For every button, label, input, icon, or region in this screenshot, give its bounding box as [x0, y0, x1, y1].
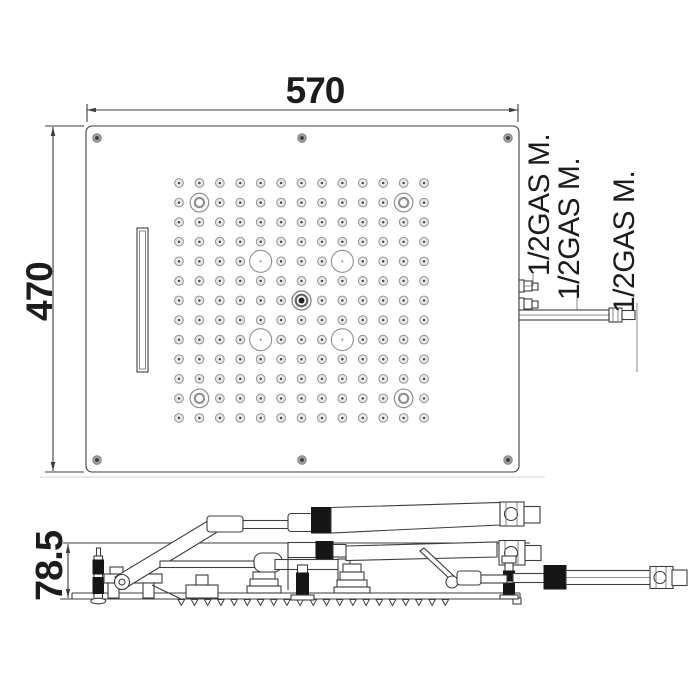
dimension-depth: 78.5 [29, 530, 92, 601]
medium-circle-nozzle-dot [260, 339, 262, 341]
small-nozzle-dot [361, 221, 364, 224]
gas-thread-label-3: 1/2GAS M. [608, 171, 641, 313]
screw-hole-center [300, 136, 304, 140]
small-nozzle-dot [382, 319, 385, 322]
small-nozzle-dot [219, 378, 222, 381]
small-nozzle-dot [239, 358, 242, 361]
side-view [63, 502, 687, 606]
small-nozzle-dot [361, 182, 364, 185]
small-nozzle-dot [280, 260, 283, 263]
small-nozzle-dot [361, 397, 364, 400]
small-nozzle-dot [198, 417, 201, 420]
small-nozzle-dot [259, 417, 262, 420]
large-ring-nozzle-center [195, 394, 204, 403]
small-nozzle-dot [219, 221, 222, 224]
small-nozzle-dot [402, 240, 405, 243]
small-nozzle-dot [198, 319, 201, 322]
small-nozzle-dot [402, 338, 405, 341]
small-nozzle-dot [341, 182, 344, 185]
small-nozzle-dot [300, 338, 303, 341]
small-nozzle-dot [239, 221, 242, 224]
small-nozzle-dot [341, 221, 344, 224]
small-nozzle-dot [280, 417, 283, 420]
small-nozzle-dot [402, 221, 405, 224]
small-nozzle-dot [178, 358, 181, 361]
small-nozzle-dot [219, 280, 222, 283]
serration-tooth [323, 600, 330, 606]
small-nozzle-dot [321, 221, 324, 224]
small-nozzle-dot [300, 260, 303, 263]
small-nozzle-dot [341, 240, 344, 243]
screw-hole-center [506, 458, 510, 462]
small-nozzle-dot [259, 280, 262, 283]
small-nozzle-dot [259, 182, 262, 185]
small-nozzle-dot [239, 201, 242, 204]
small-nozzle-dot [198, 221, 201, 224]
small-nozzle-dot [341, 417, 344, 420]
link-rod [160, 561, 258, 568]
screw-hole-center [300, 458, 304, 462]
small-nozzle-dot [280, 319, 283, 322]
small-nozzle-dot [382, 417, 385, 420]
small-nozzle-dot [402, 280, 405, 283]
small-nozzle-dot [259, 397, 262, 400]
small-nozzle-dot [361, 358, 364, 361]
small-nozzle-dot [178, 397, 181, 400]
small-nozzle-dot [321, 397, 324, 400]
serration-tooth [270, 600, 277, 606]
small-nozzle-dot [178, 417, 181, 420]
serration-tooth [218, 600, 225, 606]
small-nozzle-dot [259, 378, 262, 381]
small-nozzle-dot [280, 280, 283, 283]
small-nozzle-dot [259, 201, 262, 204]
small-nozzle-dot [423, 260, 426, 263]
small-nozzle-dot [361, 201, 364, 204]
small-nozzle-dot [280, 338, 283, 341]
small-nozzle-dot [239, 260, 242, 263]
technical-drawing-shower-head: 570 470 78.5 1/2GAS M. 1/2GAS M. 1/2GAS … [0, 0, 700, 700]
small-nozzle-dot [402, 319, 405, 322]
small-nozzle-dot [423, 201, 426, 204]
drawing-canvas: 570 470 78.5 1/2GAS M. 1/2GAS M. 1/2GAS … [0, 0, 700, 700]
small-nozzle-dot [402, 260, 405, 263]
small-nozzle-dot [341, 201, 344, 204]
small-nozzle-dot [300, 417, 303, 420]
small-nozzle-dot [300, 240, 303, 243]
small-nozzle-dot [402, 299, 405, 302]
small-nozzle-dot [341, 299, 344, 302]
stepped-fitting-1 [247, 572, 281, 593]
small-nozzle-dot [402, 358, 405, 361]
small-nozzle-dot [423, 397, 426, 400]
small-nozzle-dot [382, 358, 385, 361]
small-nozzle-dot [423, 358, 426, 361]
screw-hole-center [95, 458, 99, 462]
small-nozzle-dot [239, 240, 242, 243]
small-nozzle-dot [382, 260, 385, 263]
small-nozzle-dot [259, 358, 262, 361]
large-ring-nozzle-center [399, 198, 408, 207]
small-nozzle-dot [382, 378, 385, 381]
small-nozzle-dot [382, 240, 385, 243]
small-nozzle-dot [239, 338, 242, 341]
small-nozzle-dot [219, 338, 222, 341]
small-nozzle-dot [280, 299, 283, 302]
small-nozzle-dot [219, 417, 222, 420]
t-block [186, 575, 218, 598]
small-nozzle-dot [198, 240, 201, 243]
serration-tooth [350, 600, 357, 606]
large-ring-nozzle-center [195, 198, 204, 207]
small-nozzle-dot [361, 319, 364, 322]
small-nozzle-dot [178, 182, 181, 185]
serration-tooth [178, 600, 185, 606]
serration-tooth [402, 600, 409, 606]
small-nozzle-dot [300, 319, 303, 322]
serration-tooth [336, 600, 343, 606]
small-nozzle-dot [300, 378, 303, 381]
small-nozzle-dot [280, 182, 283, 185]
small-nozzle-dot [219, 260, 222, 263]
serration-tooth [244, 600, 251, 606]
serration-tooth [363, 600, 370, 606]
small-nozzle-dot [178, 378, 181, 381]
small-nozzle-dot [239, 182, 242, 185]
small-nozzle-dot [198, 358, 201, 361]
small-nozzle-dot [178, 319, 181, 322]
small-nozzle-dot [198, 338, 201, 341]
small-nozzle-dot [423, 240, 426, 243]
small-nozzle-dot [321, 338, 324, 341]
center-nozzle-dot [299, 297, 305, 303]
small-nozzle-dot [239, 280, 242, 283]
dimension-width-label: 570 [286, 70, 345, 111]
small-nozzle-dot [239, 417, 242, 420]
small-nozzle-dot [423, 417, 426, 420]
small-nozzle-dot [280, 397, 283, 400]
small-nozzle-dot [178, 260, 181, 263]
dimension-width: 570 [87, 70, 518, 122]
small-nozzle-dot [321, 240, 324, 243]
small-nozzle-dot [341, 397, 344, 400]
small-nozzle-dot [321, 280, 324, 283]
small-nozzle-dot [361, 280, 364, 283]
small-nozzle-dot [178, 338, 181, 341]
serration-tooth [442, 600, 449, 606]
small-nozzle-dot [361, 260, 364, 263]
serration-tooth [284, 600, 291, 606]
small-nozzle-dot [321, 319, 324, 322]
small-nozzle-dot [321, 299, 324, 302]
small-nozzle-dot [178, 221, 181, 224]
medium-circle-nozzle-dot [341, 339, 343, 341]
serration-tooth [429, 600, 436, 606]
small-nozzle-dot [321, 201, 324, 204]
small-nozzle-dot [280, 378, 283, 381]
small-nozzle-dot [198, 280, 201, 283]
small-nozzle-dot [423, 299, 426, 302]
dimension-height: 470 [19, 126, 84, 472]
small-nozzle-dot [382, 299, 385, 302]
small-nozzle-dot [361, 338, 364, 341]
large-ring-nozzle-center [399, 394, 408, 403]
small-nozzle-dot [341, 358, 344, 361]
small-nozzle-dot [300, 201, 303, 204]
small-nozzle-dot [423, 378, 426, 381]
small-nozzle-dot [259, 299, 262, 302]
small-nozzle-dot [382, 201, 385, 204]
gas-thread-label-1: 1/2GAS M. [523, 134, 556, 276]
bottom-pipe [513, 566, 687, 590]
small-nozzle-dot [219, 201, 222, 204]
small-nozzle-dot [198, 378, 201, 381]
small-nozzle-dot [423, 280, 426, 283]
serration-tooth [257, 600, 264, 606]
serration-tooth [376, 600, 383, 606]
small-nozzle-dot [382, 280, 385, 283]
small-nozzle-dot [239, 397, 242, 400]
small-nozzle-dot [219, 240, 222, 243]
dimension-height-label: 470 [19, 262, 60, 321]
small-nozzle-dot [361, 378, 364, 381]
small-nozzle-dot [178, 240, 181, 243]
small-nozzle-dot [198, 299, 201, 302]
small-nozzle-dot [280, 358, 283, 361]
small-nozzle-dot [239, 319, 242, 322]
screw-hole-center [95, 136, 99, 140]
small-nozzle-dot [219, 319, 222, 322]
small-nozzle-dot [321, 417, 324, 420]
small-nozzle-dot [280, 221, 283, 224]
serration-tooth [191, 600, 198, 606]
small-nozzle-dot [361, 417, 364, 420]
small-nozzle-dot [341, 378, 344, 381]
small-nozzle-dot [423, 182, 426, 185]
small-nozzle-dot [219, 182, 222, 185]
medium-circle-nozzle-dot [260, 260, 262, 262]
small-nozzle-dot [259, 319, 262, 322]
small-nozzle-dot [259, 240, 262, 243]
small-nozzle-dot [300, 280, 303, 283]
small-nozzle-dot [239, 299, 242, 302]
small-nozzle-dot [280, 240, 283, 243]
small-nozzle-dot [219, 358, 222, 361]
serration-tooth [389, 600, 396, 606]
dimension-depth-label: 78.5 [29, 530, 71, 601]
small-nozzle-dot [321, 260, 324, 263]
small-nozzle-dot [198, 182, 201, 185]
screw-hole-center [506, 136, 510, 140]
small-nozzle-dot [300, 397, 303, 400]
top-hose [207, 502, 540, 533]
small-nozzle-dot [300, 221, 303, 224]
small-nozzle-dot [382, 397, 385, 400]
small-nozzle-dot [259, 221, 262, 224]
small-nozzle-dot [402, 378, 405, 381]
small-nozzle-dot [280, 201, 283, 204]
serration-tooth [231, 600, 238, 606]
small-nozzle-dot [361, 299, 364, 302]
small-nozzle-dot [402, 417, 405, 420]
small-nozzle-dot [178, 201, 181, 204]
small-nozzle-dot [402, 182, 405, 185]
gas-thread-label-2: 1/2GAS M. [553, 158, 586, 300]
small-nozzle-dot [219, 299, 222, 302]
small-nozzle-dot [178, 280, 181, 283]
small-nozzle-dot [300, 358, 303, 361]
small-nozzle-dot [321, 378, 324, 381]
small-nozzle-dot [423, 221, 426, 224]
serration-tooth [204, 600, 211, 606]
small-nozzle-dot [321, 182, 324, 185]
medium-circle-nozzle-dot [341, 260, 343, 262]
small-nozzle-dot [423, 338, 426, 341]
small-nozzle-dot [382, 338, 385, 341]
small-nozzle-dot [382, 182, 385, 185]
small-nozzle-dot [300, 182, 303, 185]
small-nozzle-dot [178, 299, 181, 302]
small-nozzle-dot [239, 378, 242, 381]
small-nozzle-dot [382, 221, 385, 224]
small-nozzle-dot [341, 280, 344, 283]
small-nozzle-dot [198, 260, 201, 263]
black-stem [291, 565, 314, 600]
small-nozzle-dot [361, 240, 364, 243]
small-nozzle-dot [219, 397, 222, 400]
small-nozzle-dot [423, 319, 426, 322]
small-nozzle-dot [341, 319, 344, 322]
gas-connector-2 [519, 298, 538, 310]
small-nozzle-dot [321, 358, 324, 361]
serration-tooth [416, 600, 423, 606]
